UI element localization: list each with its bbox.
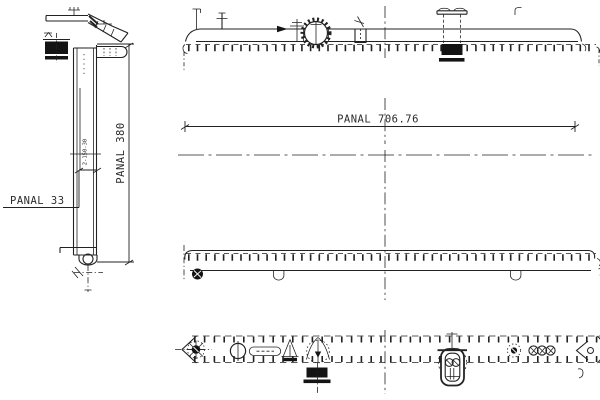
pipe-section-block [442,44,463,55]
inlet-fitting-side [43,7,128,63]
mount-hook-right [511,271,521,281]
panel-width-label: PANAL 706.76 [337,114,419,126]
mount-hook-left [274,271,284,281]
left-pin [193,9,201,29]
embossed-logo [249,347,280,355]
bottom-outlet-fitting [438,332,468,386]
drain-arrow-icon [307,338,330,363]
plug-stamp-icon [507,344,520,357]
side-view-note: 2-150-30 [83,139,89,166]
date-stamp-icons [529,346,555,355]
bottom-view [175,332,600,394]
bracket-pin [217,13,228,29]
panel-height-label: PANAL 380 [115,122,127,183]
warning-triangle-icon [282,340,299,362]
mounting-pin-icon [187,341,206,360]
vent-arrow-icon [44,33,52,38]
radiator-drawing: 2-150-30 [0,0,600,400]
inlet-fitting-top [437,8,467,61]
front-view-top-tank [183,8,600,71]
flow-arrow-icon [277,26,288,32]
bottom-pipe-section-block [307,368,328,378]
hook-tab [515,8,522,16]
dimension-panel-width: PANAL 706.76 [181,114,579,133]
dimension-panel-height: PANAL 380 [97,43,134,265]
filler-cap-icon [303,20,330,47]
dimension-panel-depth: PANAL 33 [3,168,101,208]
drawing-canvas: 2-150-30 [0,0,600,400]
panel-depth-label: PANAL 33 [10,195,65,207]
top-bracket [97,47,127,58]
front-view-bottom-tank [184,245,600,280]
drain-plug-icon [192,269,203,280]
